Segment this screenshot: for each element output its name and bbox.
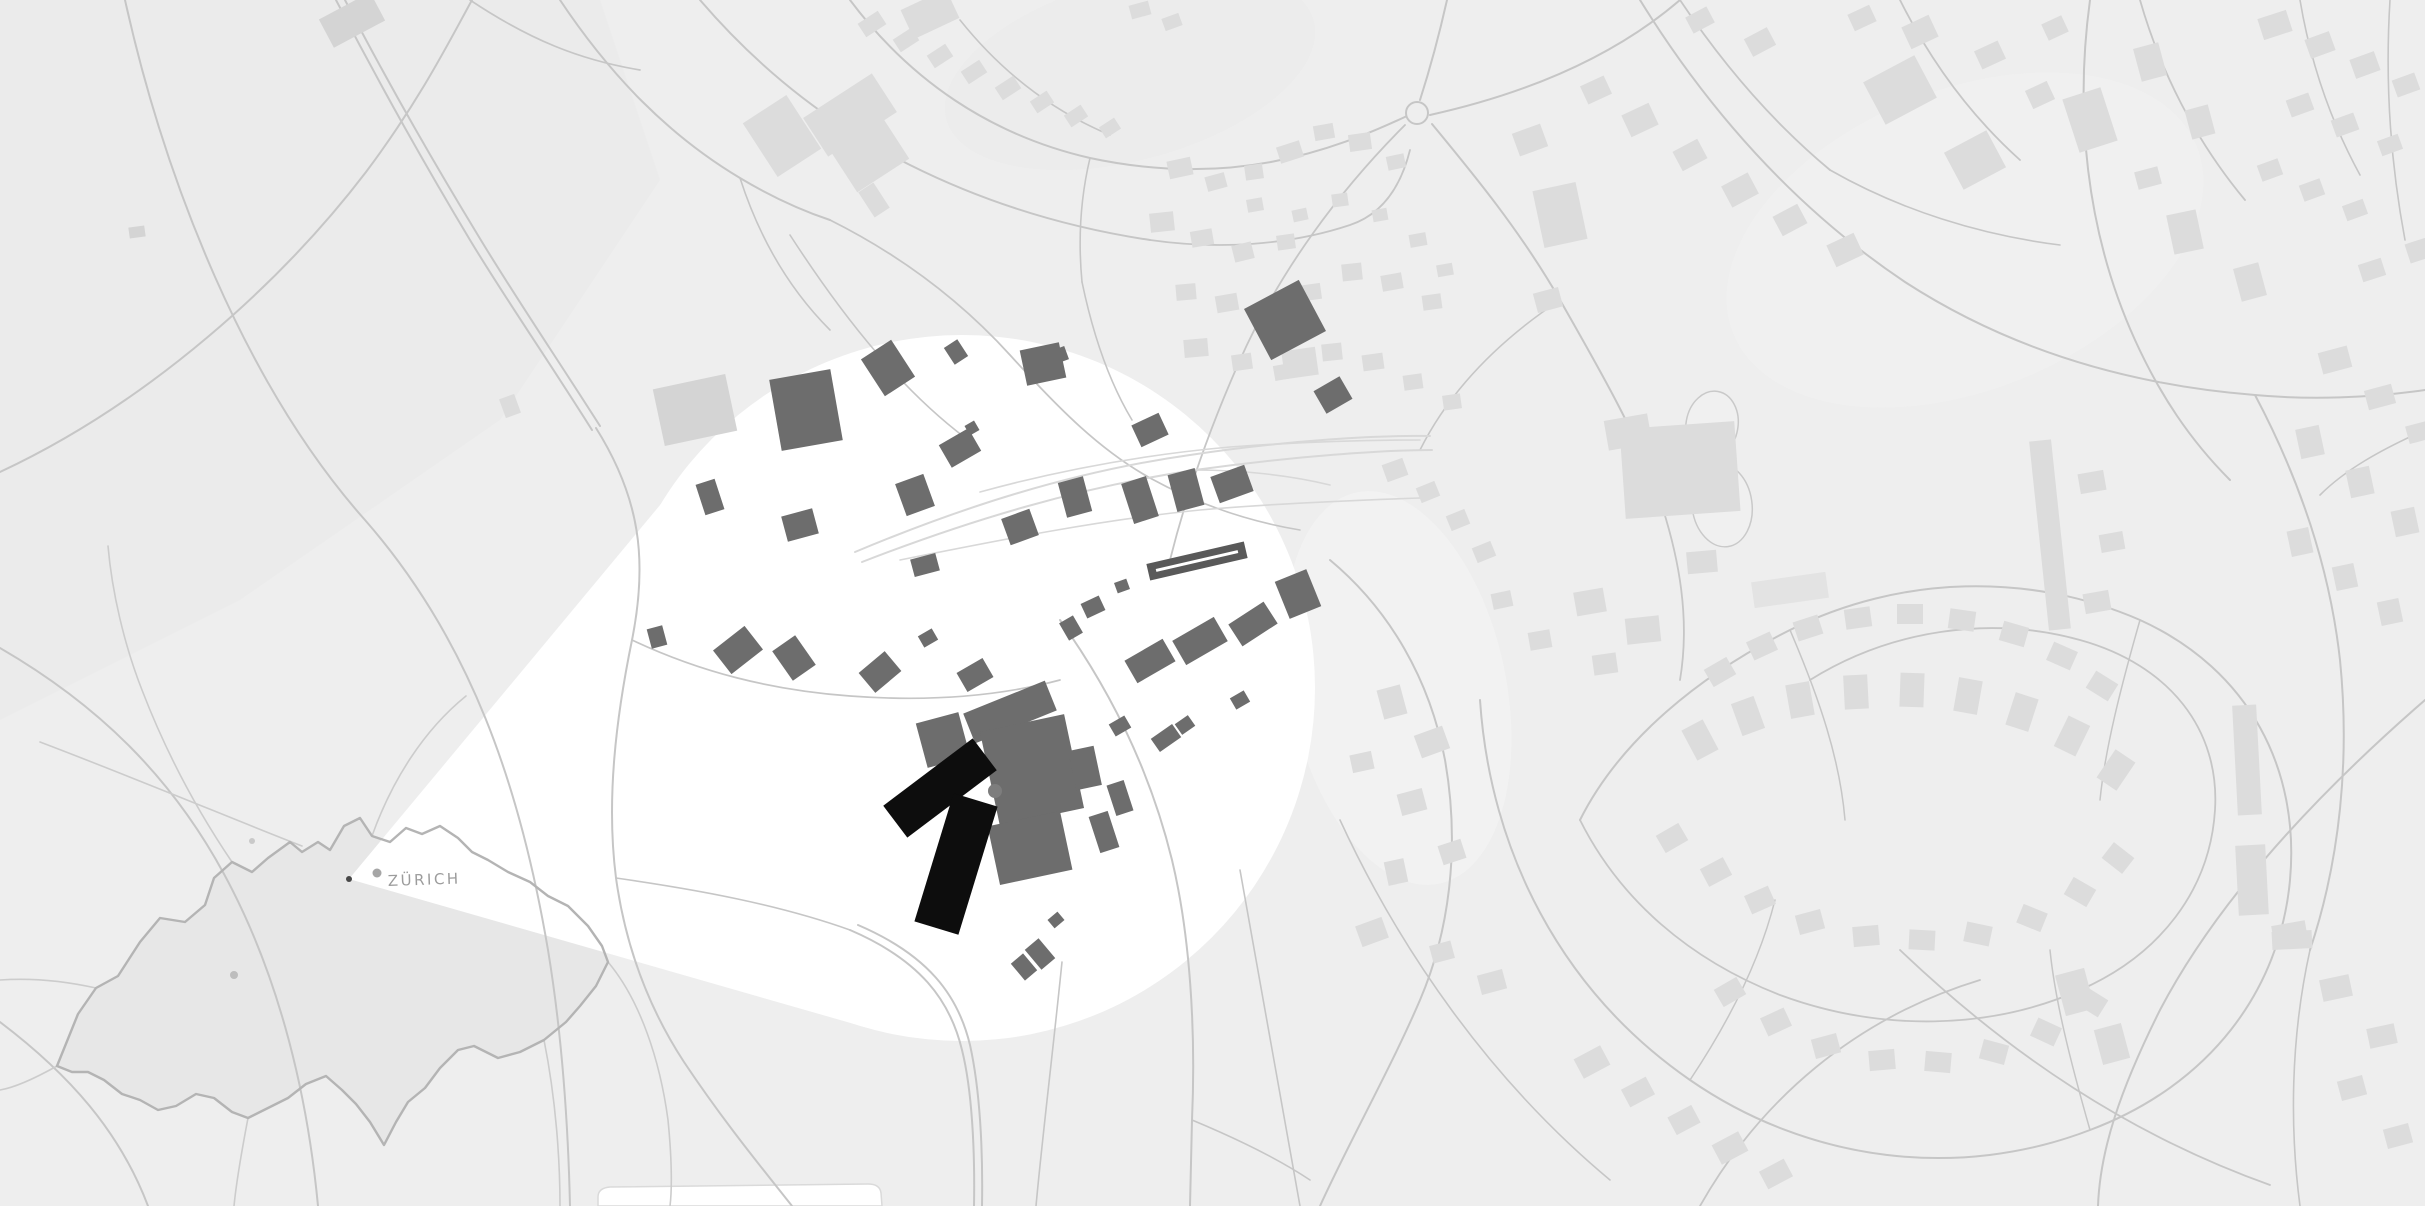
road-path (2388, 0, 2405, 240)
terrain-tint (1677, 7, 2253, 472)
building (1215, 293, 1240, 314)
building (1795, 909, 1825, 935)
building (1166, 157, 1193, 180)
road-path (2255, 395, 2344, 950)
building (2405, 420, 2425, 444)
building (1175, 283, 1196, 301)
building (1721, 172, 1759, 207)
beam-origin-dot (346, 876, 352, 882)
building (1901, 15, 1938, 49)
building (2257, 158, 2283, 181)
building (2383, 1123, 2413, 1149)
building-highlighted-cluster (769, 369, 843, 451)
building (1714, 977, 1747, 1007)
building (2342, 199, 2368, 222)
map-canvas[interactable]: ZÜRICH (0, 0, 2425, 1206)
building (1843, 674, 1869, 709)
building (1621, 103, 1658, 137)
zurich-city-dot (373, 869, 382, 878)
building (2286, 92, 2315, 117)
road-path (1192, 1120, 1310, 1180)
neighbor-border (234, 1118, 248, 1206)
road-path (740, 178, 830, 330)
road-path (1420, 300, 1560, 450)
building (1348, 132, 1372, 152)
building (1751, 572, 1829, 608)
building (1700, 857, 1732, 887)
building (1852, 925, 1880, 947)
building (1231, 353, 1253, 372)
building (1686, 550, 1718, 575)
building (2405, 236, 2425, 263)
building (1656, 823, 1689, 853)
building (1948, 608, 1977, 631)
building (1380, 272, 1403, 291)
road-path (1340, 820, 1610, 1180)
building (1149, 211, 1175, 232)
building (1899, 673, 1924, 708)
building (1532, 182, 1587, 248)
building (2094, 1023, 2130, 1065)
building (2377, 598, 2404, 626)
building (2318, 345, 2353, 374)
building (1386, 153, 1407, 170)
building (2337, 1075, 2367, 1101)
building (1382, 458, 1409, 482)
border-town-dot (249, 838, 255, 844)
country-center-dot (230, 971, 238, 979)
building (1246, 197, 1264, 213)
building (2233, 262, 2267, 302)
building (2287, 527, 2314, 557)
building (1681, 719, 1718, 760)
building (2299, 178, 2325, 201)
building (2319, 974, 2353, 1002)
building (1667, 1105, 1700, 1135)
building (1580, 75, 1612, 104)
building (1183, 338, 1208, 358)
building (1712, 1131, 1749, 1165)
building (1672, 139, 1707, 172)
building (128, 225, 145, 238)
road-path (1700, 980, 1980, 1206)
building (2086, 671, 2119, 702)
road-path (1080, 158, 1090, 282)
building (1341, 263, 1363, 282)
building (2358, 258, 2386, 283)
neighbor-border (0, 979, 96, 988)
building-highlighted-cluster (1314, 376, 1353, 414)
building (1744, 886, 1776, 915)
building (1908, 929, 1935, 950)
building (1897, 604, 1923, 624)
building (1847, 5, 1876, 31)
building (1685, 6, 1715, 33)
building (1442, 393, 1462, 410)
building (2099, 531, 2126, 553)
building (743, 95, 821, 177)
building (1868, 1049, 1896, 1071)
road-path (1790, 630, 1845, 820)
road-path (1660, 500, 1684, 680)
building (2257, 10, 2292, 40)
building (2345, 466, 2374, 498)
building (1731, 696, 1765, 736)
building (1422, 293, 1443, 310)
building (1979, 1039, 2009, 1065)
building (1974, 40, 2006, 69)
building (1621, 1077, 1655, 1108)
building (2030, 1017, 2062, 1046)
building (2304, 31, 2335, 59)
building (1244, 163, 1264, 180)
building (1276, 233, 1296, 250)
building (1472, 541, 1497, 563)
building (1429, 940, 1455, 963)
city-label: ZÜRICH (387, 868, 460, 890)
building (2332, 563, 2359, 591)
building (1355, 917, 1389, 947)
building (2392, 72, 2421, 97)
building (1924, 1051, 1952, 1073)
building (2235, 844, 2269, 915)
building (1533, 287, 1563, 313)
building (1409, 232, 1428, 248)
building (1477, 969, 1507, 995)
building (1321, 343, 1343, 362)
building (1744, 27, 1776, 57)
building (1999, 621, 2030, 647)
building (2055, 968, 2095, 1016)
building (1436, 263, 1454, 278)
building (1746, 631, 1778, 660)
building (1491, 590, 1514, 610)
building (1512, 124, 1548, 157)
building (1844, 606, 1873, 629)
building (2077, 470, 2106, 494)
building (2082, 590, 2111, 614)
building (1416, 481, 1441, 503)
building (1573, 588, 1607, 617)
building (1963, 922, 1993, 947)
building (2366, 1023, 2398, 1048)
spotlight-highlight (349, 335, 1315, 1206)
road-path (2293, 950, 2310, 1206)
building (2029, 439, 2071, 630)
secondary-spotlight-edge (598, 1184, 882, 1206)
building (1625, 615, 1662, 644)
neighbor-border (0, 1066, 57, 1090)
building (1759, 1159, 1793, 1190)
building (1372, 208, 1389, 222)
building (1811, 1033, 1841, 1059)
road-path (1420, 0, 1447, 100)
building (1574, 1045, 1611, 1079)
building (1592, 652, 1619, 675)
site-plan-map[interactable]: ZÜRICH (0, 0, 2425, 1206)
building (2133, 42, 2167, 82)
building (2016, 904, 2048, 932)
road-path (2300, 0, 2360, 175)
building (2364, 384, 2396, 411)
building (1446, 509, 1471, 531)
building (1760, 1007, 1792, 1036)
building (927, 44, 954, 69)
neighbor-border (608, 962, 671, 1206)
building (1291, 208, 1308, 223)
building (1403, 373, 1424, 390)
neighbor-border (544, 1040, 560, 1206)
building (2349, 51, 2380, 79)
building (2331, 112, 2360, 137)
building (1793, 614, 1824, 641)
building (2064, 877, 2097, 907)
building (2391, 507, 2420, 537)
building (2005, 692, 2038, 732)
terrain-tint (0, 0, 660, 720)
terrain-tint (923, 0, 1337, 206)
building (1528, 629, 1553, 651)
building (2295, 425, 2325, 459)
building (1313, 123, 1335, 141)
road-path (1430, 0, 1680, 115)
building (2046, 642, 2078, 671)
building (2377, 134, 2403, 157)
roundabout (1406, 102, 1428, 124)
building (1204, 172, 1227, 192)
building (2102, 842, 2135, 874)
building (1331, 192, 1349, 207)
building (2054, 715, 2090, 756)
building (1276, 140, 1304, 164)
entrance-dot (988, 784, 1002, 798)
building (1785, 681, 1815, 719)
building (1704, 657, 1737, 687)
building (1361, 353, 1384, 372)
building (1953, 677, 1983, 715)
building (2041, 15, 2069, 41)
